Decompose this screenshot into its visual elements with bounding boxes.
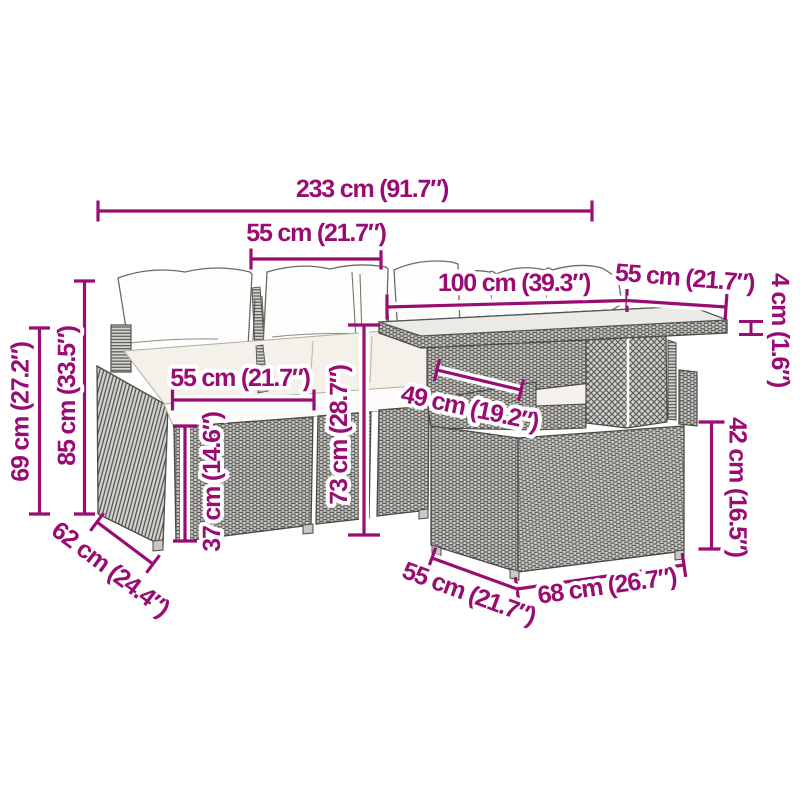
svg-text:73 cm (28.7″): 73 cm (28.7″) — [325, 364, 353, 504]
svg-text:68 cm (26.7″): 68 cm (26.7″) — [536, 562, 679, 609]
svg-text:37 cm (14.6″): 37 cm (14.6″) — [198, 411, 226, 551]
svg-text:55 cm (21.7″): 55 cm (21.7″) — [614, 259, 756, 298]
svg-text:55 cm (21.7″): 55 cm (21.7″) — [246, 219, 386, 247]
svg-text:69 cm (27.2″): 69 cm (27.2″) — [7, 341, 35, 481]
svg-text:42 cm (16.5″): 42 cm (16.5″) — [724, 417, 752, 557]
svg-text:233 cm (91.7″): 233 cm (91.7″) — [296, 175, 449, 203]
svg-text:55 cm (21.7″): 55 cm (21.7″) — [170, 364, 310, 392]
svg-text:4 cm (1.6″): 4 cm (1.6″) — [766, 273, 794, 388]
svg-text:85 cm (33.5″): 85 cm (33.5″) — [53, 325, 81, 465]
svg-text:100 cm (39.3″): 100 cm (39.3″) — [438, 269, 591, 297]
